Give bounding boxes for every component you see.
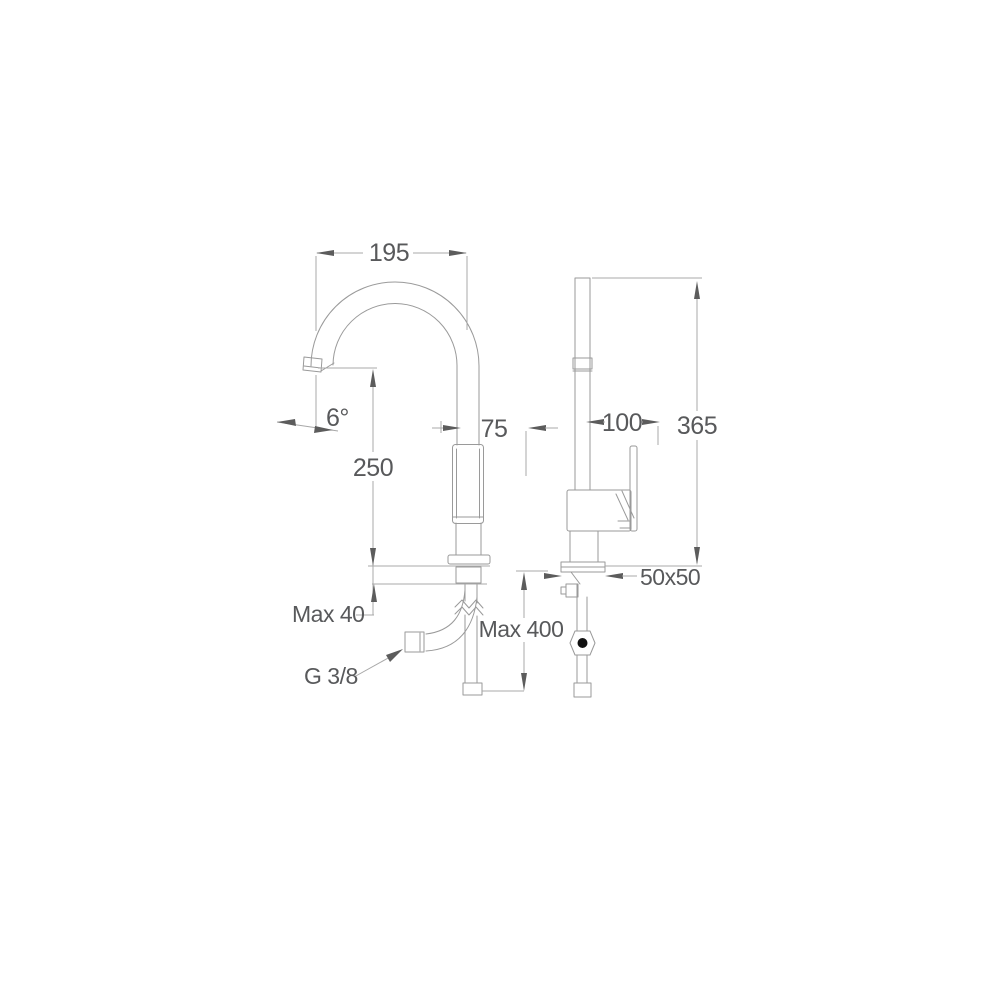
- technical-drawing-faucet: 195 6° 250 Max 40 75: [0, 0, 1000, 1000]
- side-shank-tick: [571, 572, 580, 584]
- dimension-body-width: 75: [432, 415, 558, 476]
- dim-195-label: 195: [369, 239, 409, 267]
- side-supply-pipe-lower: [577, 655, 587, 683]
- dim-365-label: 365: [677, 412, 717, 440]
- dimension-supply-connection: G 3/8: [304, 649, 403, 689]
- front-view: [303, 282, 490, 695]
- front-body: [453, 445, 484, 524]
- dimension-base-plate: 50x50: [544, 564, 700, 590]
- side-body: [567, 490, 631, 531]
- side-spout-column: [575, 278, 590, 490]
- dim-75-arrow-left: [443, 425, 461, 431]
- front-hose-end-fitting: [463, 683, 482, 695]
- spout-inner-arc: [333, 304, 457, 445]
- dim-max40-label: Max 40: [292, 601, 364, 627]
- stud-dot: [578, 638, 588, 648]
- dimension-max-hose-length: Max 400: [479, 571, 564, 691]
- dim-75-label: 75: [481, 415, 508, 443]
- front-base-flange: [448, 555, 490, 564]
- dim-100-arrow-right: [642, 419, 660, 425]
- side-lower-column: [570, 531, 598, 562]
- curved-hose-inner: [426, 597, 477, 651]
- dim-195-arrow-left: [316, 250, 334, 256]
- dim-6-arrow-left: [277, 419, 296, 426]
- spout-underside: [321, 363, 334, 371]
- front-shank-nut: [456, 567, 481, 583]
- spout-outlet-cap: [303, 357, 322, 372]
- front-supply-pipe-upper: [465, 583, 477, 603]
- g38-leader-arrow: [386, 649, 403, 662]
- dimension-max-deck-thickness: Max 40: [292, 584, 377, 627]
- dim-75-arrow-right: [528, 425, 546, 431]
- side-view: [561, 278, 637, 697]
- dimension-spout-reach: 195: [316, 239, 467, 331]
- g38-fitting: [405, 632, 424, 652]
- counter-lines: [368, 566, 490, 584]
- dim-250-arrow-top: [370, 369, 376, 387]
- front-supply-pipe-lower: [465, 615, 477, 683]
- side-hose-end-fitting: [574, 683, 591, 697]
- g38-leader-line: [354, 657, 390, 677]
- dim-max400-label: Max 400: [479, 616, 564, 642]
- dim-365-arrow-top: [694, 281, 700, 299]
- dim-50x50-arrow-right: [605, 573, 623, 579]
- front-neck: [456, 523, 481, 555]
- dim-50x50-arrow-left: [544, 573, 562, 579]
- curved-hose-outer: [426, 590, 465, 634]
- dim-max40-arrow-up: [371, 584, 377, 602]
- dim-250-label: 250: [353, 454, 393, 482]
- dim-6-label: 6°: [326, 404, 349, 432]
- side-fixing-fitting: [566, 584, 578, 597]
- dim-50x50-label: 50x50: [640, 564, 700, 590]
- dim-max400-arrow-bottom: [521, 673, 527, 691]
- dim-100-label: 100: [602, 409, 642, 437]
- dimension-handle-projection: 100: [586, 409, 660, 445]
- side-aerator: [573, 358, 592, 369]
- dim-365-arrow-bottom: [694, 547, 700, 565]
- dim-max400-arrow-top: [521, 572, 527, 590]
- dim-195-arrow-right: [449, 250, 467, 256]
- dimension-spout-angle: 6°: [277, 375, 349, 433]
- side-fixing-stub: [561, 587, 566, 594]
- dim-250-arrow-bottom: [370, 548, 376, 566]
- dim-g38-label: G 3/8: [304, 663, 358, 689]
